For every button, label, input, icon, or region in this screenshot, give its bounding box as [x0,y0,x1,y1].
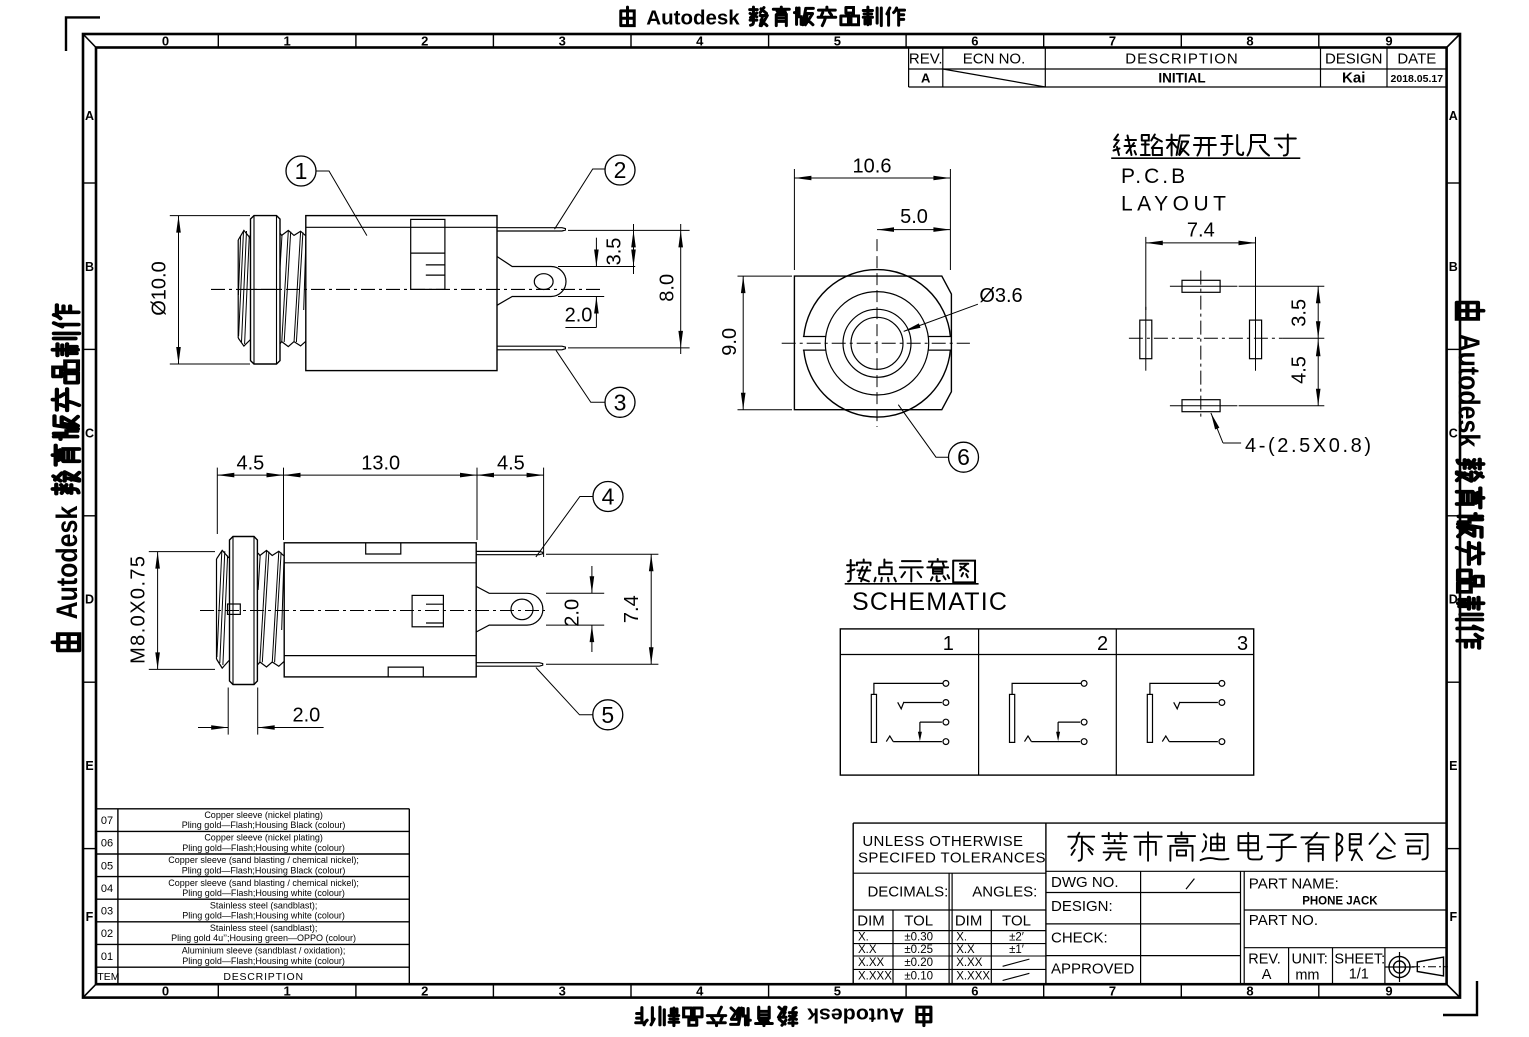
svg-text:2.0: 2.0 [292,705,320,727]
svg-text:DIM: DIM [955,913,983,930]
svg-text:1: 1 [283,34,290,49]
svg-text:A: A [921,71,931,86]
svg-text:3: 3 [559,984,566,999]
svg-text:PHONE JACK: PHONE JACK [1302,896,1378,908]
svg-text:4.5: 4.5 [497,453,525,475]
svg-text:Autodesk: Autodesk [1452,334,1485,448]
svg-text:LAYOUT: LAYOUT [1121,193,1230,216]
svg-text:1/1: 1/1 [1349,966,1369,982]
svg-text:UNIT:: UNIT: [1291,952,1327,968]
svg-text:2: 2 [1097,633,1108,655]
svg-text:PART NO.: PART NO. [1249,912,1318,929]
svg-text:5: 5 [601,702,614,728]
svg-text:Kai: Kai [1342,70,1365,87]
svg-text:9: 9 [1385,984,1392,999]
svg-text:Copper sleeve (nickel plati: Copper sleeve (nickel plating) [204,810,323,820]
svg-text:X.X: X.X [956,944,975,956]
svg-text:6: 6 [971,34,978,49]
svg-text:ECN NO.: ECN NO. [963,51,1026,68]
svg-text:4-(2.5X0.8): 4-(2.5X0.8) [1245,435,1374,457]
svg-text:7: 7 [1109,34,1116,49]
svg-text:5.0: 5.0 [900,206,928,228]
svg-text:INITIAL: INITIAL [1158,71,1205,86]
svg-text:SHEET:: SHEET: [1334,952,1385,968]
svg-text:DESIGN: DESIGN [1325,51,1383,68]
svg-text:ANGLES:: ANGLES: [972,884,1037,901]
svg-text:Ø3.6: Ø3.6 [979,285,1022,307]
svg-text:7.4: 7.4 [1187,220,1215,242]
svg-text:2.0: 2.0 [565,305,593,327]
svg-text:4: 4 [602,484,615,510]
svg-text:D: D [85,593,94,607]
svg-text:±0.10: ±0.10 [904,971,933,983]
svg-text:F: F [86,910,94,924]
svg-text:SCHEMATIC: SCHEMATIC [852,588,1008,616]
svg-text:3.5: 3.5 [604,238,626,266]
svg-text:13.0: 13.0 [361,453,400,475]
svg-text:REV.: REV. [1248,952,1281,968]
svg-text:7: 7 [1109,984,1116,999]
svg-text:X.: X. [858,932,869,944]
svg-text:M8.0X0.75: M8.0X0.75 [127,555,149,664]
svg-text:02: 02 [101,928,113,940]
svg-text:±0.25: ±0.25 [904,944,933,956]
svg-text:4: 4 [696,34,704,49]
svg-text:E: E [85,759,93,773]
svg-text:1: 1 [283,984,290,999]
svg-text:TOL: TOL [904,913,933,930]
svg-text:6: 6 [971,984,978,999]
svg-text:DESCRIPTION: DESCRIPTION [1125,51,1239,68]
svg-text:0: 0 [162,984,169,999]
svg-text:B: B [1449,260,1458,274]
svg-text:mm: mm [1295,967,1319,983]
svg-text:DESIGN:: DESIGN: [1051,898,1113,915]
svg-text:Pling gold—Flash;Housing whi: Pling gold—Flash;Housing white (colour) [182,911,345,921]
svg-text:9: 9 [1385,34,1392,49]
svg-text:C: C [85,426,94,440]
svg-text:CHECK:: CHECK: [1051,930,1108,947]
svg-text:Pling gold 4u’’;Housing gre: Pling gold 4u’’;Housing green—OPPO (colo… [171,933,356,943]
svg-text:5: 5 [834,34,841,49]
svg-text:X.XXX: X.XXX [858,971,892,983]
svg-text:Stainless steel (sandblast);: Stainless steel (sandblast); [210,900,318,910]
svg-text:Pling gold—Flash;Housing Bla: Pling gold—Flash;Housing Black (colour) [182,820,346,830]
svg-text:X.: X. [956,932,967,944]
svg-text:Copper sleeve (sand blastin: Copper sleeve (sand blasting / chemical … [168,878,359,888]
svg-text:3: 3 [614,389,627,415]
svg-text:2: 2 [421,34,428,49]
svg-text:±0.20: ±0.20 [904,957,933,969]
svg-text:7.4: 7.4 [621,595,643,623]
svg-text:DECIMALS:: DECIMALS: [867,884,948,901]
svg-text:03: 03 [101,906,113,918]
svg-text:DIM: DIM [857,913,885,930]
svg-text:DESCRIPTION: DESCRIPTION [223,971,304,983]
svg-text:1: 1 [943,633,954,655]
svg-text:±2′: ±2′ [1009,932,1024,944]
svg-text:PART NAME:: PART NAME: [1249,876,1339,893]
svg-text:X.XX: X.XX [956,957,983,969]
svg-text:5: 5 [834,984,841,999]
svg-text:Ø10.0: Ø10.0 [149,261,171,315]
svg-text:DWG NO.: DWG NO. [1051,874,1119,891]
svg-text:2: 2 [614,157,627,183]
svg-text:04: 04 [101,883,113,895]
svg-text:10.6: 10.6 [853,156,892,178]
svg-text:1: 1 [295,158,308,184]
svg-text:3: 3 [1237,633,1248,655]
svg-text:±0.30: ±0.30 [904,932,933,944]
svg-text:05: 05 [101,860,113,872]
svg-text:X.XX: X.XX [858,957,885,969]
svg-text:Autodesk: Autodesk [646,6,740,29]
svg-text:Stainless steel (sandblast);: Stainless steel (sandblast); [210,923,318,933]
svg-text:X.X: X.X [858,944,877,956]
svg-text:9.0: 9.0 [719,328,741,356]
svg-text:4.5: 4.5 [1289,356,1311,384]
svg-text:A: A [85,109,94,123]
svg-text:0: 0 [162,34,169,49]
svg-text:D: D [1449,593,1458,607]
svg-text:A: A [1449,109,1458,123]
svg-text:REV.: REV. [909,51,943,68]
svg-text:8: 8 [1246,984,1253,999]
svg-text:SPECIFED TOLERANCES: SPECIFED TOLERANCES [858,850,1046,867]
svg-text:X.XXX: X.XXX [956,971,990,983]
svg-text:DATE: DATE [1397,51,1436,68]
svg-text:UNLESS OTHERWISE: UNLESS OTHERWISE [862,833,1023,850]
svg-text:TOL: TOL [1002,913,1031,930]
svg-text:Autodesk: Autodesk [50,505,83,619]
svg-text:07: 07 [101,815,113,827]
svg-text:APPROVED: APPROVED [1051,961,1135,978]
svg-text:Aluminium sleeve (sandblast: Aluminium sleeve (sandblast / oxidation)… [182,946,346,956]
svg-text:01: 01 [101,951,113,963]
svg-text:±1′: ±1′ [1009,944,1024,956]
svg-text:Pling gold—Flash;Housing whi: Pling gold—Flash;Housing white (colour) [182,956,345,966]
svg-text:2.0: 2.0 [562,599,584,627]
svg-text:06: 06 [101,838,113,850]
svg-text:Copper sleeve (nickel plati: Copper sleeve (nickel plating) [204,833,323,843]
svg-text:ITEM: ITEM [94,971,119,983]
svg-text:3.5: 3.5 [1289,299,1311,327]
svg-text:P.C.B: P.C.B [1121,165,1188,188]
svg-text:2: 2 [421,984,428,999]
svg-text:6: 6 [957,444,970,470]
svg-text:3: 3 [559,34,566,49]
svg-text:B: B [85,260,94,274]
svg-text:Pling gold—Flash;Housing Bla: Pling gold—Flash;Housing Black (colour) [182,865,346,875]
svg-text:4.5: 4.5 [236,453,264,475]
svg-text:F: F [1449,910,1457,924]
svg-text:Copper sleeve (sand blastin: Copper sleeve (sand blasting / chemical … [168,855,359,865]
svg-text:E: E [1449,759,1457,773]
svg-text:2018.05.17: 2018.05.17 [1391,73,1444,85]
svg-text:8: 8 [1246,34,1253,49]
svg-text:Pling gold—Flash;Housing whi: Pling gold—Flash;Housing white (colour) [182,843,345,853]
svg-text:Autodesk: Autodesk [807,1004,904,1027]
svg-text:4: 4 [696,984,704,999]
svg-text:Pling gold—Flash;Housing whi: Pling gold—Flash;Housing white (colour) [182,888,345,898]
svg-text:8.0: 8.0 [657,274,679,302]
svg-text:A: A [1262,967,1272,983]
